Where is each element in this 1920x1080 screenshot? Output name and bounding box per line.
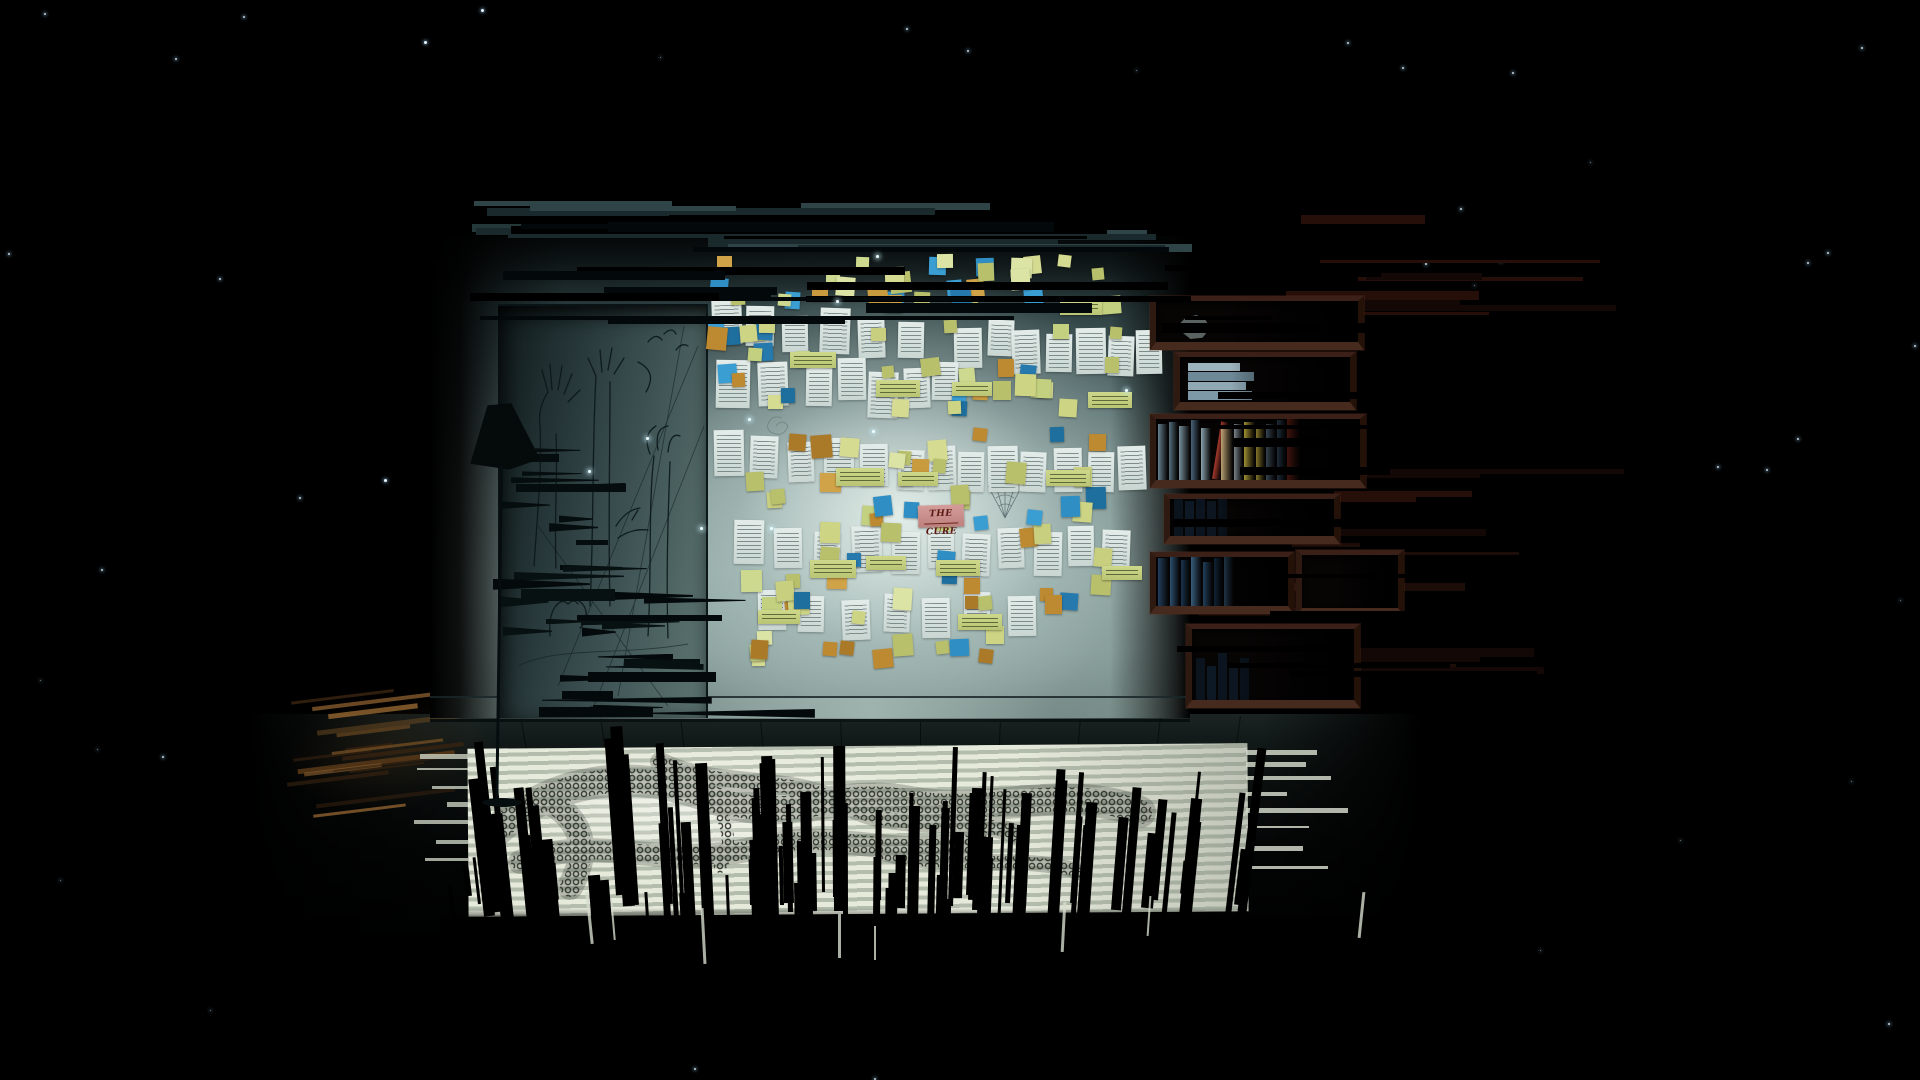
panel-glitch-flag <box>576 540 608 546</box>
sticky-note <box>973 515 989 531</box>
sticky-note <box>1060 592 1079 610</box>
shelf-black <box>1188 276 1290 282</box>
label-scribble <box>902 476 934 483</box>
paper <box>806 368 833 406</box>
sticky-note <box>943 319 957 333</box>
shelf-black <box>1270 611 1440 621</box>
book <box>1170 556 1180 606</box>
shelf <box>1296 550 1404 616</box>
star <box>1512 72 1514 74</box>
sticky-note <box>948 400 961 414</box>
floor-spike <box>895 855 906 908</box>
sticky-note <box>851 610 865 624</box>
wall-top-black <box>503 271 725 280</box>
book <box>1158 558 1169 606</box>
book <box>1191 420 1200 480</box>
wall-sparkle <box>1125 389 1128 392</box>
wall-sparkle <box>836 300 839 303</box>
wall-sparkle <box>646 437 649 440</box>
shelf-black <box>1279 574 1466 578</box>
shelf-maroon <box>1301 215 1424 223</box>
wall-sparkle <box>876 255 879 258</box>
paper <box>734 520 765 565</box>
paper-text-lines <box>1071 531 1092 562</box>
book <box>1212 421 1229 480</box>
sticky-note <box>739 325 758 344</box>
sticky-note <box>965 596 978 609</box>
star <box>1807 262 1809 264</box>
star <box>40 680 41 681</box>
sticky-note <box>893 587 914 610</box>
sticky-note <box>1091 267 1104 280</box>
sticky-note <box>1061 496 1081 517</box>
sticky-note <box>746 471 765 491</box>
label-scribble <box>1050 474 1086 483</box>
label-scribble <box>762 614 796 621</box>
shelf-black <box>1227 663 1450 668</box>
star <box>175 58 177 60</box>
shelf <box>1174 352 1356 410</box>
green-label-note <box>758 610 800 624</box>
paper-text-lines <box>737 525 762 560</box>
label-scribble <box>814 564 852 575</box>
green-label-note <box>866 556 906 570</box>
game-viewport[interactable]: THE CURE <box>0 0 1920 1080</box>
star <box>1402 67 1404 69</box>
shelf-maroon <box>1320 260 1600 263</box>
sticky-note <box>1026 509 1043 525</box>
sticky-note <box>1093 547 1112 567</box>
floor-spike <box>843 803 849 917</box>
sticky-note <box>750 640 769 660</box>
book <box>1169 422 1178 480</box>
sticky-note <box>977 595 993 611</box>
star <box>1797 438 1799 440</box>
paper-text-lines <box>1000 533 1021 565</box>
light-streak <box>414 820 468 824</box>
star <box>660 57 661 58</box>
book <box>1181 560 1190 606</box>
wall-sparkle <box>770 527 773 530</box>
shelf-black <box>1185 316 1272 320</box>
sticky-note <box>781 387 795 402</box>
sticky-note <box>993 381 1011 400</box>
wall-sparkle <box>748 418 751 421</box>
shelf-black <box>1234 438 1340 447</box>
shelf-black <box>1173 519 1395 527</box>
label-scribble <box>880 384 916 394</box>
sticky-note <box>788 434 806 452</box>
star <box>1540 950 1541 951</box>
paper <box>1117 446 1147 491</box>
book <box>1224 556 1234 606</box>
sticky-note <box>839 437 859 458</box>
light-streak <box>436 840 468 844</box>
sticky-note <box>1058 398 1078 417</box>
sticky-note <box>1005 461 1027 485</box>
wall-sparkle <box>872 430 875 433</box>
paper-text-lines <box>925 603 948 634</box>
star <box>1425 263 1427 265</box>
paper <box>1076 328 1107 375</box>
paper <box>922 598 951 638</box>
star <box>1851 781 1852 782</box>
paper-text-lines <box>717 435 742 472</box>
panel-glitch-flag <box>562 691 613 699</box>
light-streak <box>417 768 468 770</box>
label-scribble <box>870 560 902 567</box>
paper-text-lines <box>957 333 980 364</box>
wall-top-black <box>724 236 1087 240</box>
hand-drawing-panel <box>498 304 708 718</box>
star <box>1680 840 1681 841</box>
star <box>210 1010 211 1011</box>
paper-text-lines <box>1091 457 1112 488</box>
stacked-book <box>1188 363 1240 371</box>
star <box>424 41 427 44</box>
label-scribble <box>1092 396 1128 405</box>
book <box>1221 426 1233 480</box>
sticky-note <box>935 640 949 654</box>
star <box>243 16 245 18</box>
green-label-note <box>1046 470 1090 486</box>
star <box>1136 70 1137 71</box>
patch-bottom-fade <box>440 908 1370 957</box>
paper <box>774 528 803 568</box>
star <box>1827 252 1829 254</box>
shelf-black <box>1240 467 1390 475</box>
star <box>694 1068 696 1070</box>
sticky-note <box>972 428 987 442</box>
star <box>1914 345 1916 347</box>
paper-text-lines <box>1049 339 1070 368</box>
sticky-note <box>1050 427 1065 442</box>
label-scribble <box>840 472 880 483</box>
stacked-book <box>1188 372 1254 381</box>
star <box>1474 285 1475 286</box>
sticky-note <box>706 326 728 350</box>
wall-top-black <box>669 215 1180 221</box>
light-sliver <box>838 914 841 958</box>
sticky-note <box>871 327 886 341</box>
paper <box>819 307 851 354</box>
sticky-note <box>920 357 941 377</box>
panel-glitch-flag <box>577 615 722 621</box>
label-scribble <box>940 564 976 573</box>
book <box>1203 562 1213 606</box>
green-label-note <box>810 560 856 578</box>
star <box>60 880 61 881</box>
sticky-note <box>819 522 839 543</box>
sticky-note <box>823 642 838 657</box>
star <box>1717 466 1719 468</box>
faint-book <box>1218 494 1227 536</box>
paper-text-lines <box>752 441 775 475</box>
star <box>1888 1023 1890 1025</box>
sticky-note <box>775 580 795 602</box>
panel-glitch-flag <box>539 707 653 718</box>
sticky-note <box>839 640 855 656</box>
panel-glitch-flag <box>516 484 626 492</box>
wall-top-black <box>608 222 1053 232</box>
paper-text-lines <box>1079 333 1104 370</box>
star <box>384 479 387 482</box>
faint-book <box>1207 666 1216 700</box>
green-label-note <box>1088 392 1132 408</box>
green-label-note <box>936 560 980 576</box>
light-streak <box>425 858 468 861</box>
paper <box>898 322 925 358</box>
wall-sparkle <box>588 470 591 473</box>
star <box>906 28 908 30</box>
paper-text-lines <box>901 327 921 354</box>
sticky-note <box>950 639 969 657</box>
shelf-black <box>1162 323 1398 333</box>
green-label-note <box>898 472 938 486</box>
wall-top-black <box>868 247 1168 252</box>
sticky-note <box>1033 523 1051 544</box>
floor-light-patch <box>440 742 1370 957</box>
paper-text-lines <box>777 533 800 564</box>
green-label-note <box>952 382 992 396</box>
star <box>1590 162 1591 163</box>
star <box>1347 42 1349 44</box>
lamp-base <box>482 798 522 807</box>
sticky-note <box>1058 254 1073 268</box>
paper-text-lines <box>785 321 805 348</box>
panel-glitch-flag <box>606 616 646 621</box>
sticky-note <box>768 395 783 409</box>
sticky-note <box>880 522 901 542</box>
label-scribble <box>962 618 998 627</box>
paper-text-lines <box>961 457 982 488</box>
shelf-black <box>1218 392 1442 399</box>
star <box>1900 600 1901 601</box>
green-label-note <box>790 352 836 368</box>
sticky-note <box>978 648 993 663</box>
shelf-black <box>1218 425 1464 430</box>
sticky-note <box>770 489 786 505</box>
the-cure-note[interactable]: THE CURE <box>918 504 965 528</box>
light-streak <box>1246 866 1328 869</box>
book <box>1179 426 1190 480</box>
star <box>967 50 969 52</box>
label-scribble <box>1106 570 1138 577</box>
sticky-note <box>882 366 895 379</box>
paper <box>1008 596 1037 636</box>
star <box>8 253 10 255</box>
book <box>1158 424 1168 480</box>
faint-book <box>1174 497 1183 536</box>
faint-book <box>1229 663 1238 700</box>
paper-text-lines <box>790 447 811 479</box>
paper <box>714 430 745 477</box>
wall-top-light <box>474 201 672 205</box>
faint-book <box>1196 494 1205 536</box>
star <box>481 9 484 12</box>
green-label-note <box>1102 566 1142 580</box>
wall-top-light <box>530 206 736 211</box>
sticky-note <box>892 399 910 418</box>
light-streak <box>1246 808 1348 813</box>
floor-spike <box>800 792 812 916</box>
sticky-note <box>873 495 893 517</box>
sticky-note <box>741 569 762 591</box>
star <box>44 13 46 15</box>
sticky-note <box>1053 324 1069 340</box>
label-scribble <box>956 386 988 393</box>
shelf <box>1150 552 1294 614</box>
paper-text-lines <box>809 373 830 402</box>
shelf-maroon <box>1366 273 1482 280</box>
light-streak <box>432 786 468 789</box>
sticky-note <box>872 648 893 668</box>
sticky-note <box>1104 357 1118 373</box>
paper-text-lines <box>1011 601 1034 632</box>
paper-text-lines <box>841 363 864 396</box>
book <box>1214 558 1223 606</box>
wall-top-black <box>480 316 1014 320</box>
faint-book <box>1196 658 1205 700</box>
faint-book <box>1218 653 1227 700</box>
book <box>1191 556 1202 606</box>
stacked-book <box>1188 382 1246 390</box>
shelf-maroon <box>1364 469 1624 474</box>
sticky-note <box>964 578 980 594</box>
sticky-note <box>811 434 833 459</box>
star <box>1460 208 1462 210</box>
sticky-note <box>937 254 953 269</box>
star <box>101 569 103 571</box>
paper-text-lines <box>991 325 1012 353</box>
shelf-black <box>1290 671 1537 677</box>
star <box>162 756 164 758</box>
light-sliver <box>874 926 876 960</box>
sticky-note <box>1045 595 1062 614</box>
sticky-note <box>950 485 970 506</box>
star <box>219 278 221 280</box>
wall-top-black <box>608 320 845 324</box>
shelf-maroon <box>1349 312 1489 315</box>
light-streak <box>420 754 468 759</box>
paper <box>1068 526 1095 566</box>
book <box>1201 428 1211 480</box>
sticky-note <box>998 359 1014 377</box>
sticky-note <box>794 592 810 609</box>
sticky-note <box>748 348 763 362</box>
wall-sparkle <box>700 527 703 530</box>
light-streak <box>447 802 468 807</box>
shelf-black <box>1177 646 1336 653</box>
star <box>1766 469 1768 471</box>
sticky-note <box>1015 374 1036 397</box>
green-label-note <box>876 380 920 397</box>
sticky-note <box>731 372 744 387</box>
floor-spike <box>820 757 825 892</box>
star <box>299 497 301 499</box>
panel-glitch-flag <box>521 589 614 601</box>
sticky-note <box>1109 327 1122 339</box>
label-scribble <box>794 356 832 365</box>
wall-top-black <box>470 293 719 301</box>
star <box>1861 47 1863 49</box>
wall-top-black <box>866 303 1092 313</box>
green-label-note <box>836 468 884 486</box>
sticky-note <box>978 262 995 280</box>
floor-spike <box>832 820 839 897</box>
green-label-note <box>958 614 1002 630</box>
wall-top-black <box>807 282 1168 290</box>
shelf-black <box>1246 250 1503 260</box>
paper <box>838 358 867 400</box>
paper-text-lines <box>1120 451 1143 487</box>
sticky-note <box>892 634 914 657</box>
hands-line-art <box>498 306 706 716</box>
paper <box>1046 334 1073 372</box>
sticky-note <box>1089 434 1106 451</box>
sticky-note <box>889 452 907 469</box>
star <box>97 749 98 750</box>
